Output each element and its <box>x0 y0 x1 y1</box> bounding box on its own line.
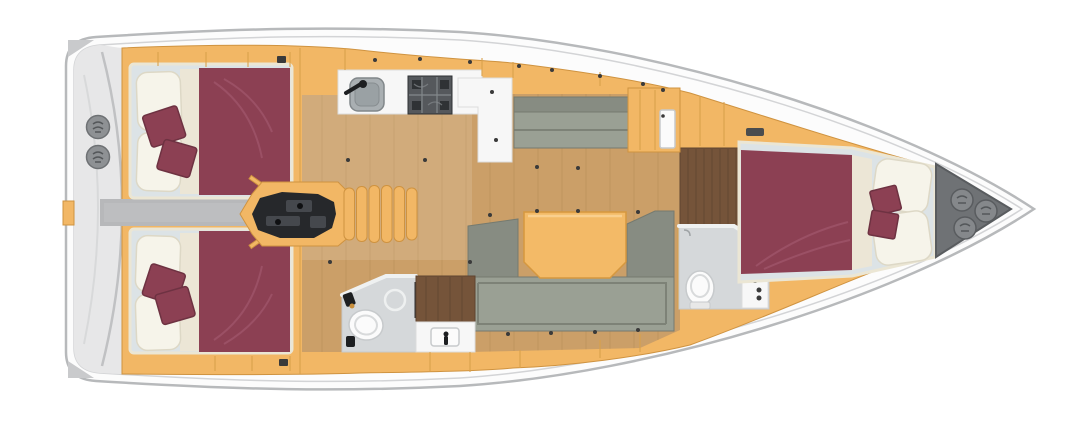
sofa-seat <box>468 277 674 331</box>
walnut-floor <box>680 148 742 226</box>
aft-cabin-upper <box>130 52 292 198</box>
sink-icon <box>346 78 384 111</box>
shower-knob <box>350 304 355 309</box>
vent-icon <box>746 128 764 136</box>
winch-icon <box>87 116 110 139</box>
stair-tread <box>407 188 418 240</box>
engine-icon <box>252 192 336 238</box>
counter-latch <box>494 138 498 142</box>
floor-plan-canvas <box>0 0 1092 443</box>
stair-tread <box>394 187 405 242</box>
fridge-handle <box>661 114 665 118</box>
yacht-floor-plan <box>0 0 1092 443</box>
winch-icon <box>87 146 110 169</box>
stair-tread <box>369 186 380 243</box>
engine-cap <box>275 219 281 225</box>
settee-backrest <box>514 97 628 113</box>
stair-tread <box>344 188 355 240</box>
aft-head <box>342 276 475 352</box>
berth-duvet <box>199 68 290 195</box>
berth-sheet <box>852 155 872 270</box>
sofa-left-arm <box>468 219 518 278</box>
starboard-cabinet <box>628 88 680 152</box>
sofa-right-arm <box>627 211 674 278</box>
stove-icon <box>408 76 452 114</box>
transom-door-sill <box>63 201 74 225</box>
forward-cabin-entry <box>680 148 742 226</box>
corridor-highlight <box>104 203 264 222</box>
stair-tread <box>382 186 393 243</box>
deck-hatch-icon <box>954 217 976 239</box>
toilet-icon <box>686 271 714 309</box>
vanity-faucet-icon <box>444 336 448 345</box>
berth-duvet <box>199 231 290 352</box>
walnut-panel <box>416 276 475 322</box>
counter-latch <box>490 90 494 94</box>
engine-bay <box>240 182 350 246</box>
cushion <box>868 210 899 239</box>
salon-settee <box>514 97 628 148</box>
engine-cap <box>297 203 303 209</box>
aft-cabin-lower <box>130 229 292 371</box>
aft-head-vanity <box>416 322 475 352</box>
salon-sofa <box>468 211 674 331</box>
deck-hatch-icon <box>951 189 973 211</box>
stair-tread <box>357 187 368 242</box>
deck-hatch-icon <box>975 200 997 222</box>
dining-table <box>524 212 626 278</box>
